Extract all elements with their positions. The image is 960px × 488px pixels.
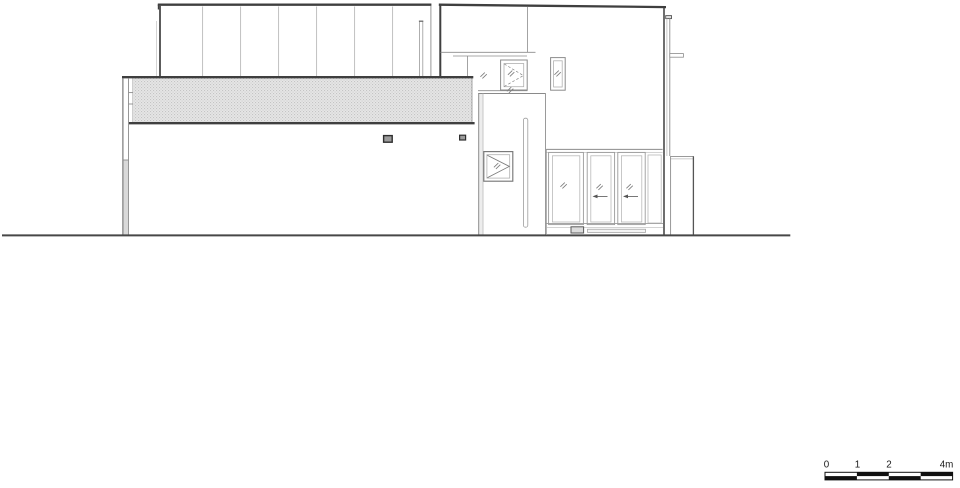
scale-segment-black — [921, 472, 953, 476]
bay-face — [478, 93, 546, 235]
right-low-wall — [670, 156, 694, 235]
low-wall-face — [671, 156, 694, 235]
scale-label-4m: 4m — [940, 460, 954, 471]
overflow-spout — [670, 54, 684, 58]
perforated-screen-band — [122, 77, 475, 123]
wall-vent-box-small — [460, 135, 466, 140]
wall-vent-box — [384, 136, 393, 143]
elevation-drawing: 0 1 2 4m — [0, 0, 960, 488]
downpipe-cap — [666, 16, 672, 19]
threshold-step — [571, 227, 584, 233]
scale-segment-black — [857, 472, 889, 476]
bay-left-reveal — [479, 94, 482, 235]
scale-segment-black — [825, 476, 857, 480]
elevation-sheet: 0 1 2 4m — [0, 0, 960, 488]
scale-label-2: 2 — [886, 460, 891, 471]
scale-label-0: 0 — [824, 460, 830, 471]
screen-stipple-fill — [133, 78, 472, 122]
threshold-plate — [588, 229, 646, 232]
scale-label-1: 1 — [855, 460, 860, 471]
scale-bar-segments — [825, 472, 953, 480]
column-lower-shade — [124, 160, 129, 235]
projecting-bay — [478, 93, 546, 235]
scale-segment-black — [889, 476, 921, 480]
slot-window — [523, 118, 527, 227]
